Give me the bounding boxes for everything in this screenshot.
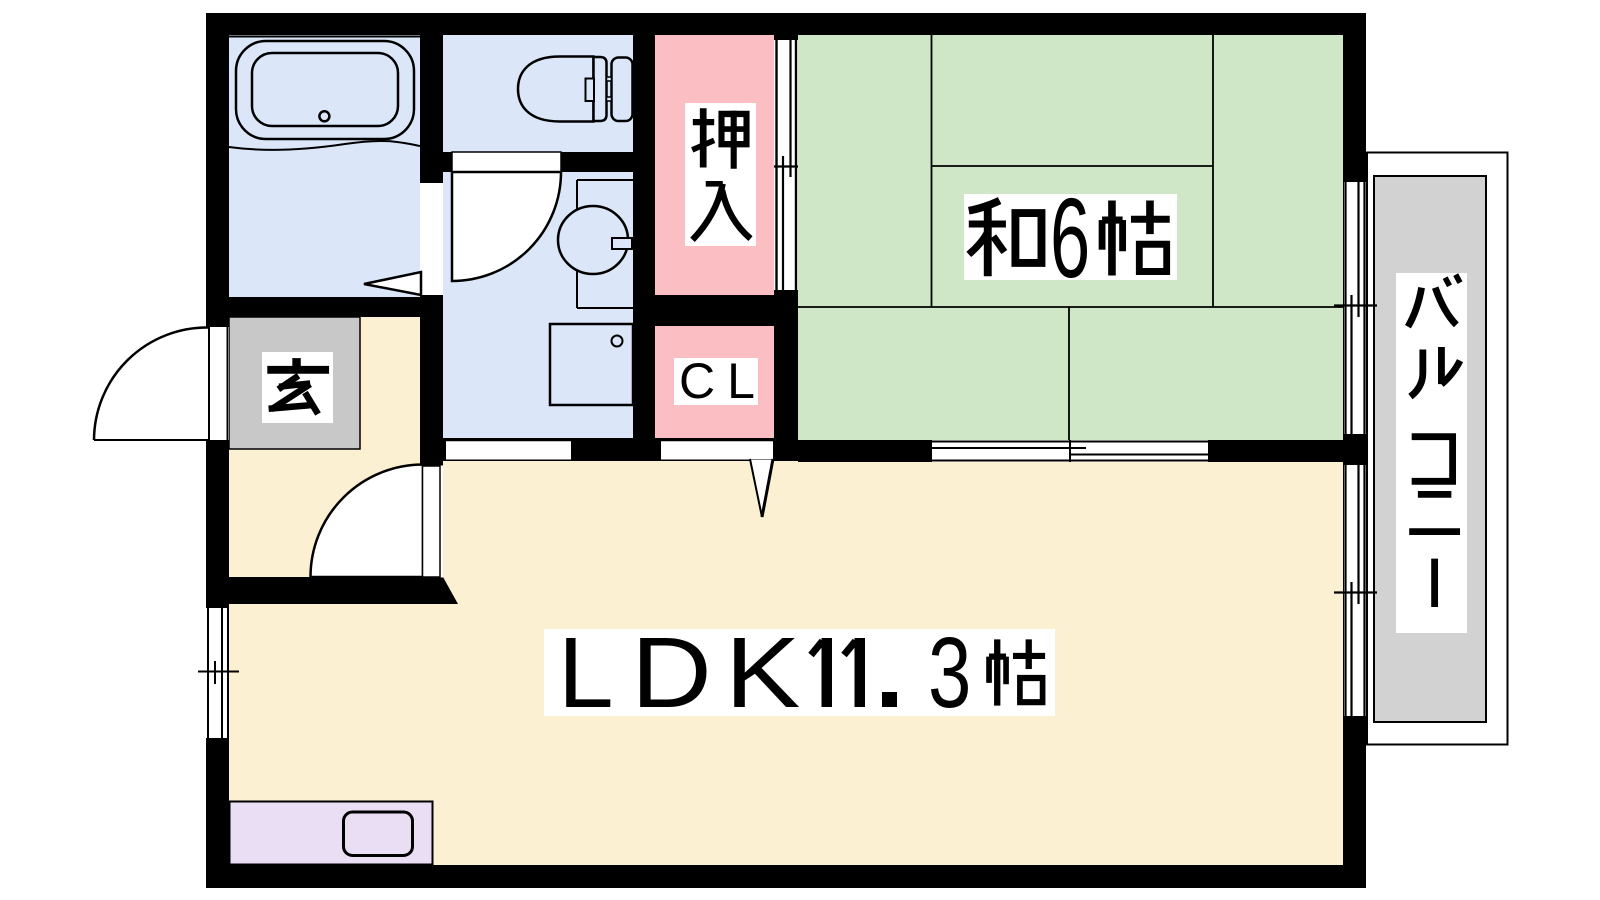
svg-text:D: D [631, 618, 712, 729]
svg-text:K: K [725, 616, 800, 728]
svg-text:3: 3 [928, 618, 971, 730]
svg-text:L: L [558, 617, 614, 729]
svg-text:6: 6 [1050, 176, 1090, 302]
svg-text:CL: CL [679, 353, 767, 409]
